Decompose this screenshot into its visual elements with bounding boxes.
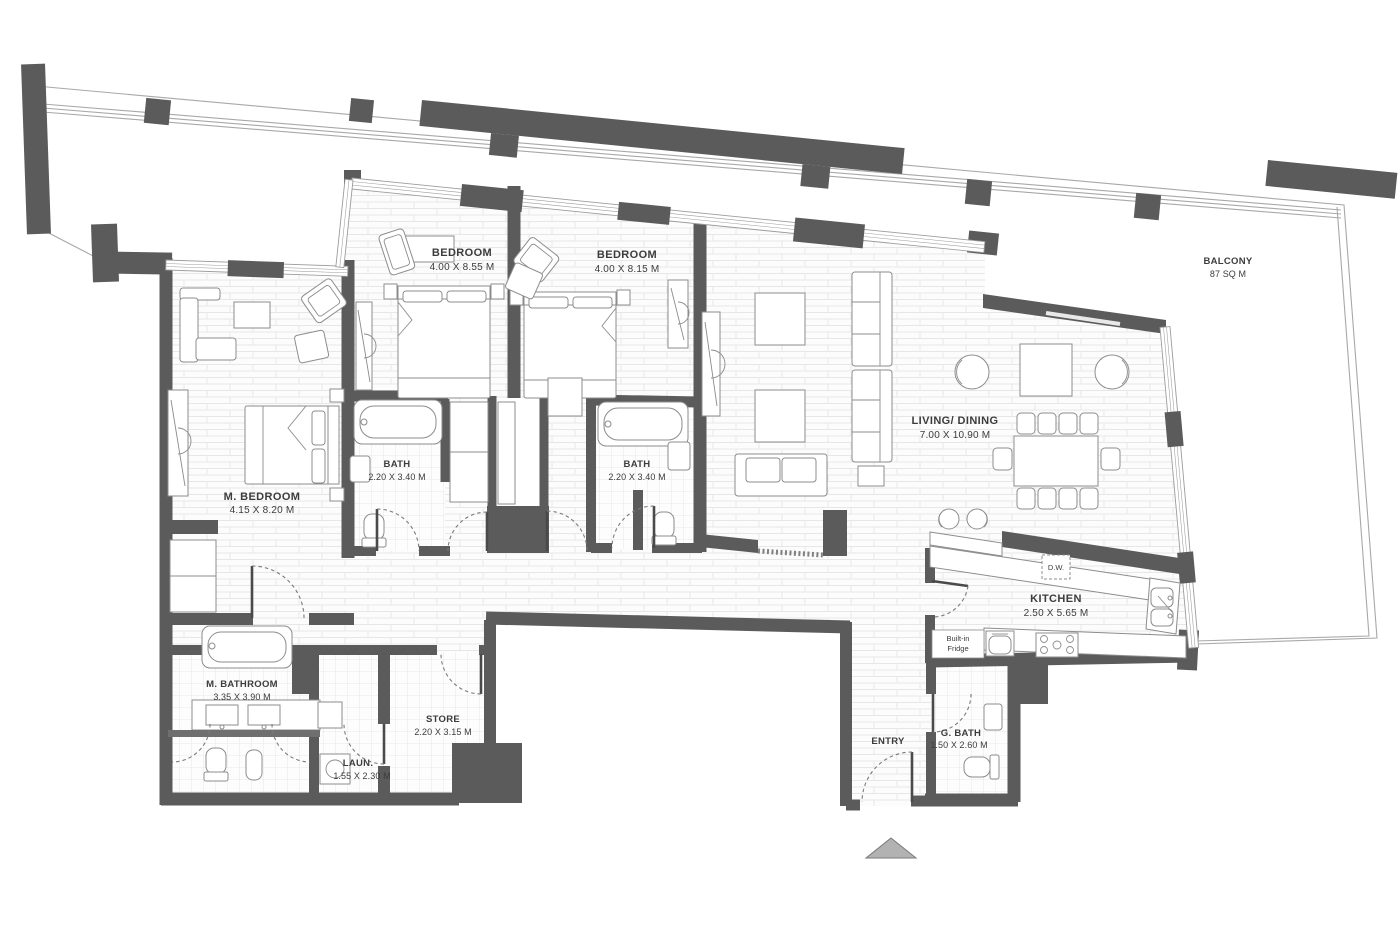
floor-plan-svg: BEDROOM 4.00 X 8.55 M BEDROOM 4.00 X 8.1… — [0, 0, 1400, 930]
kitchen-label: KITCHEN — [1030, 593, 1082, 605]
nightstand-icon — [330, 389, 344, 402]
table-icon — [1020, 344, 1072, 396]
toilet-icon — [652, 512, 676, 545]
bedroom2-label: BEDROOM — [597, 249, 657, 261]
balcony-label: BALCONY — [1203, 256, 1252, 267]
master-bedroom-label: M. BEDROOM — [224, 491, 301, 503]
bath2-label: BATH — [624, 459, 651, 470]
bathtub-icon — [598, 402, 688, 446]
fridge-label-line1: Built-in — [947, 634, 970, 643]
bathtub-icon — [354, 400, 442, 444]
living-dining-dims: 7.00 X 10.90 M — [920, 430, 991, 441]
entry-label: ENTRY — [871, 736, 905, 747]
bed-icon — [398, 286, 490, 398]
kitchen-dims: 2.50 X 5.65 M — [1024, 608, 1089, 619]
coffee-table-icon — [234, 302, 270, 328]
master-bathroom-dims: 3.35 X 3.90 M — [213, 692, 270, 702]
washbasin-icon — [350, 456, 370, 482]
bath1-label: BATH — [384, 459, 411, 470]
laundry-dims: 1.55 X 2.30 M — [333, 771, 390, 781]
chair-icon — [1017, 413, 1035, 434]
store-label: STORE — [426, 714, 460, 725]
tv-unit-icon — [168, 390, 191, 496]
bathtub-icon — [202, 626, 292, 668]
chair-icon — [1038, 413, 1056, 434]
ottoman-icon — [294, 330, 329, 364]
balcony-dims: 87 SQ M — [1210, 269, 1246, 279]
bedroom1-label: BEDROOM — [432, 247, 492, 259]
fridge-icon — [986, 631, 1014, 656]
toilet-icon — [362, 514, 386, 547]
side-table-icon — [755, 390, 805, 442]
lounge-chair-icon — [955, 355, 989, 389]
washbasin-icon — [984, 704, 1002, 730]
chair-icon — [1080, 488, 1098, 509]
laundry-label: LAUN. — [343, 758, 374, 769]
railing-post-icon — [144, 98, 1161, 220]
bedroom1-dims: 4.00 X 8.55 M — [430, 262, 495, 273]
wardrobe-icon — [170, 540, 216, 612]
bath2-dims: 2.20 X 3.40 M — [608, 472, 665, 482]
entry-arrow-icon — [866, 838, 916, 858]
living-dining-label: LIVING/ DINING — [912, 415, 999, 427]
master-bathroom-label: M. BATHROOM — [206, 679, 278, 690]
duct-icon — [498, 402, 515, 504]
nightstand-icon — [330, 488, 344, 501]
washbasin-icon — [668, 442, 690, 470]
stove-icon — [1036, 633, 1078, 657]
chair-icon — [1101, 448, 1120, 470]
laundry-sink-icon — [318, 702, 342, 728]
lounge-chair-icon — [1095, 355, 1129, 389]
wardrobe-icon — [450, 402, 488, 502]
guest-bath-label: G. BATH — [941, 728, 981, 739]
chair-icon — [1080, 413, 1098, 434]
fridge-label-line2: Fridge — [947, 644, 968, 653]
side-table-icon — [755, 293, 805, 345]
master-bedroom-dims: 4.15 X 8.20 M — [230, 505, 295, 516]
dining-table-icon — [1014, 436, 1098, 486]
bath1-dims: 2.20 X 3.40 M — [368, 472, 425, 482]
chair-icon — [1017, 488, 1035, 509]
bedroom2-dims: 4.00 X 8.15 M — [595, 264, 660, 275]
chair-icon — [1059, 488, 1077, 509]
loveseat-icon — [735, 454, 827, 496]
guest-bath-dims: 1.50 X 2.60 M — [930, 740, 987, 750]
store-dims: 2.20 X 3.15 M — [414, 727, 471, 737]
bidet-icon — [246, 750, 262, 780]
nightstand-icon — [491, 284, 504, 299]
floor-plan-page: BEDROOM 4.00 X 8.55 M BEDROOM 4.00 X 8.1… — [0, 0, 1400, 930]
wardrobe-icon — [548, 378, 582, 416]
chair-icon — [1059, 413, 1077, 434]
sofa-icon — [852, 272, 892, 366]
sofa-icon — [852, 370, 892, 462]
dishwasher-label: D.W. — [1048, 563, 1064, 572]
chair-icon — [1038, 488, 1056, 509]
tv-unit-icon — [668, 280, 689, 348]
toilet-icon — [964, 755, 999, 779]
nightstand-icon — [384, 284, 397, 299]
nightstand-icon — [617, 290, 630, 305]
coffee-table-icon — [858, 466, 884, 486]
chair-icon — [993, 448, 1012, 470]
bed-icon — [245, 406, 339, 484]
sink-icon — [1146, 578, 1180, 634]
toilet-icon — [204, 748, 228, 781]
